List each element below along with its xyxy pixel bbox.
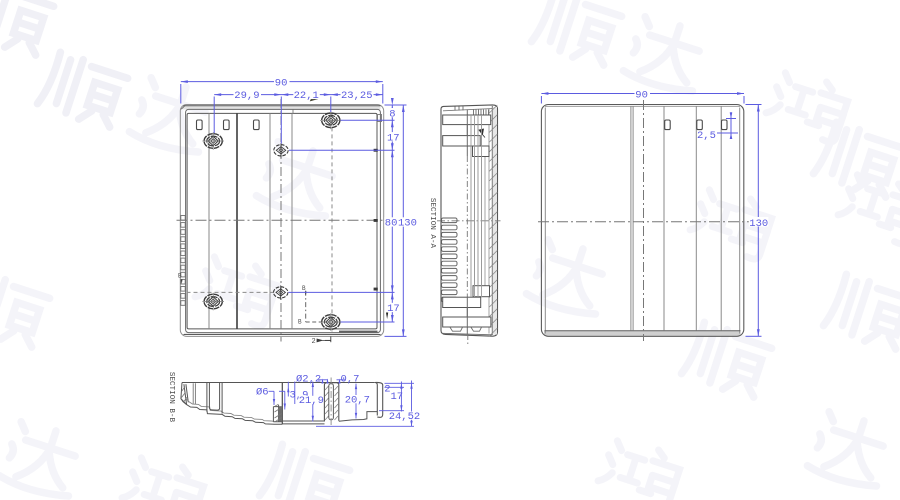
svg-text:90: 90 <box>635 89 648 101</box>
svg-text:24,52: 24,52 <box>389 411 421 423</box>
svg-text:SECTION B-B: SECTION B-B <box>167 372 175 423</box>
svg-text:SECTION A-A: SECTION A-A <box>428 198 436 249</box>
svg-text:0,7: 0,7 <box>341 373 360 385</box>
svg-text:Ø6: Ø6 <box>256 386 269 398</box>
svg-text:20,7: 20,7 <box>345 394 370 406</box>
svg-text:17: 17 <box>387 133 400 145</box>
svg-text:23,25: 23,25 <box>341 90 373 102</box>
svg-text:B: B <box>298 319 302 326</box>
svg-text:17: 17 <box>391 391 404 403</box>
svg-text:80: 80 <box>385 218 398 230</box>
svg-text:17: 17 <box>387 303 400 315</box>
svg-text:B: B <box>302 285 306 292</box>
svg-text:B: B <box>178 273 182 280</box>
svg-text:90: 90 <box>275 77 288 89</box>
svg-text:2: 2 <box>312 338 316 346</box>
svg-text:2,5: 2,5 <box>697 130 716 142</box>
svg-text:130: 130 <box>749 218 768 230</box>
svg-text:29,9: 29,9 <box>234 90 259 102</box>
svg-text:Ø2,2: Ø2,2 <box>296 373 321 385</box>
svg-text:21,9: 21,9 <box>299 395 324 407</box>
svg-text:130: 130 <box>398 218 417 230</box>
svg-text:8: 8 <box>389 109 395 121</box>
svg-text:22,1: 22,1 <box>294 90 319 102</box>
